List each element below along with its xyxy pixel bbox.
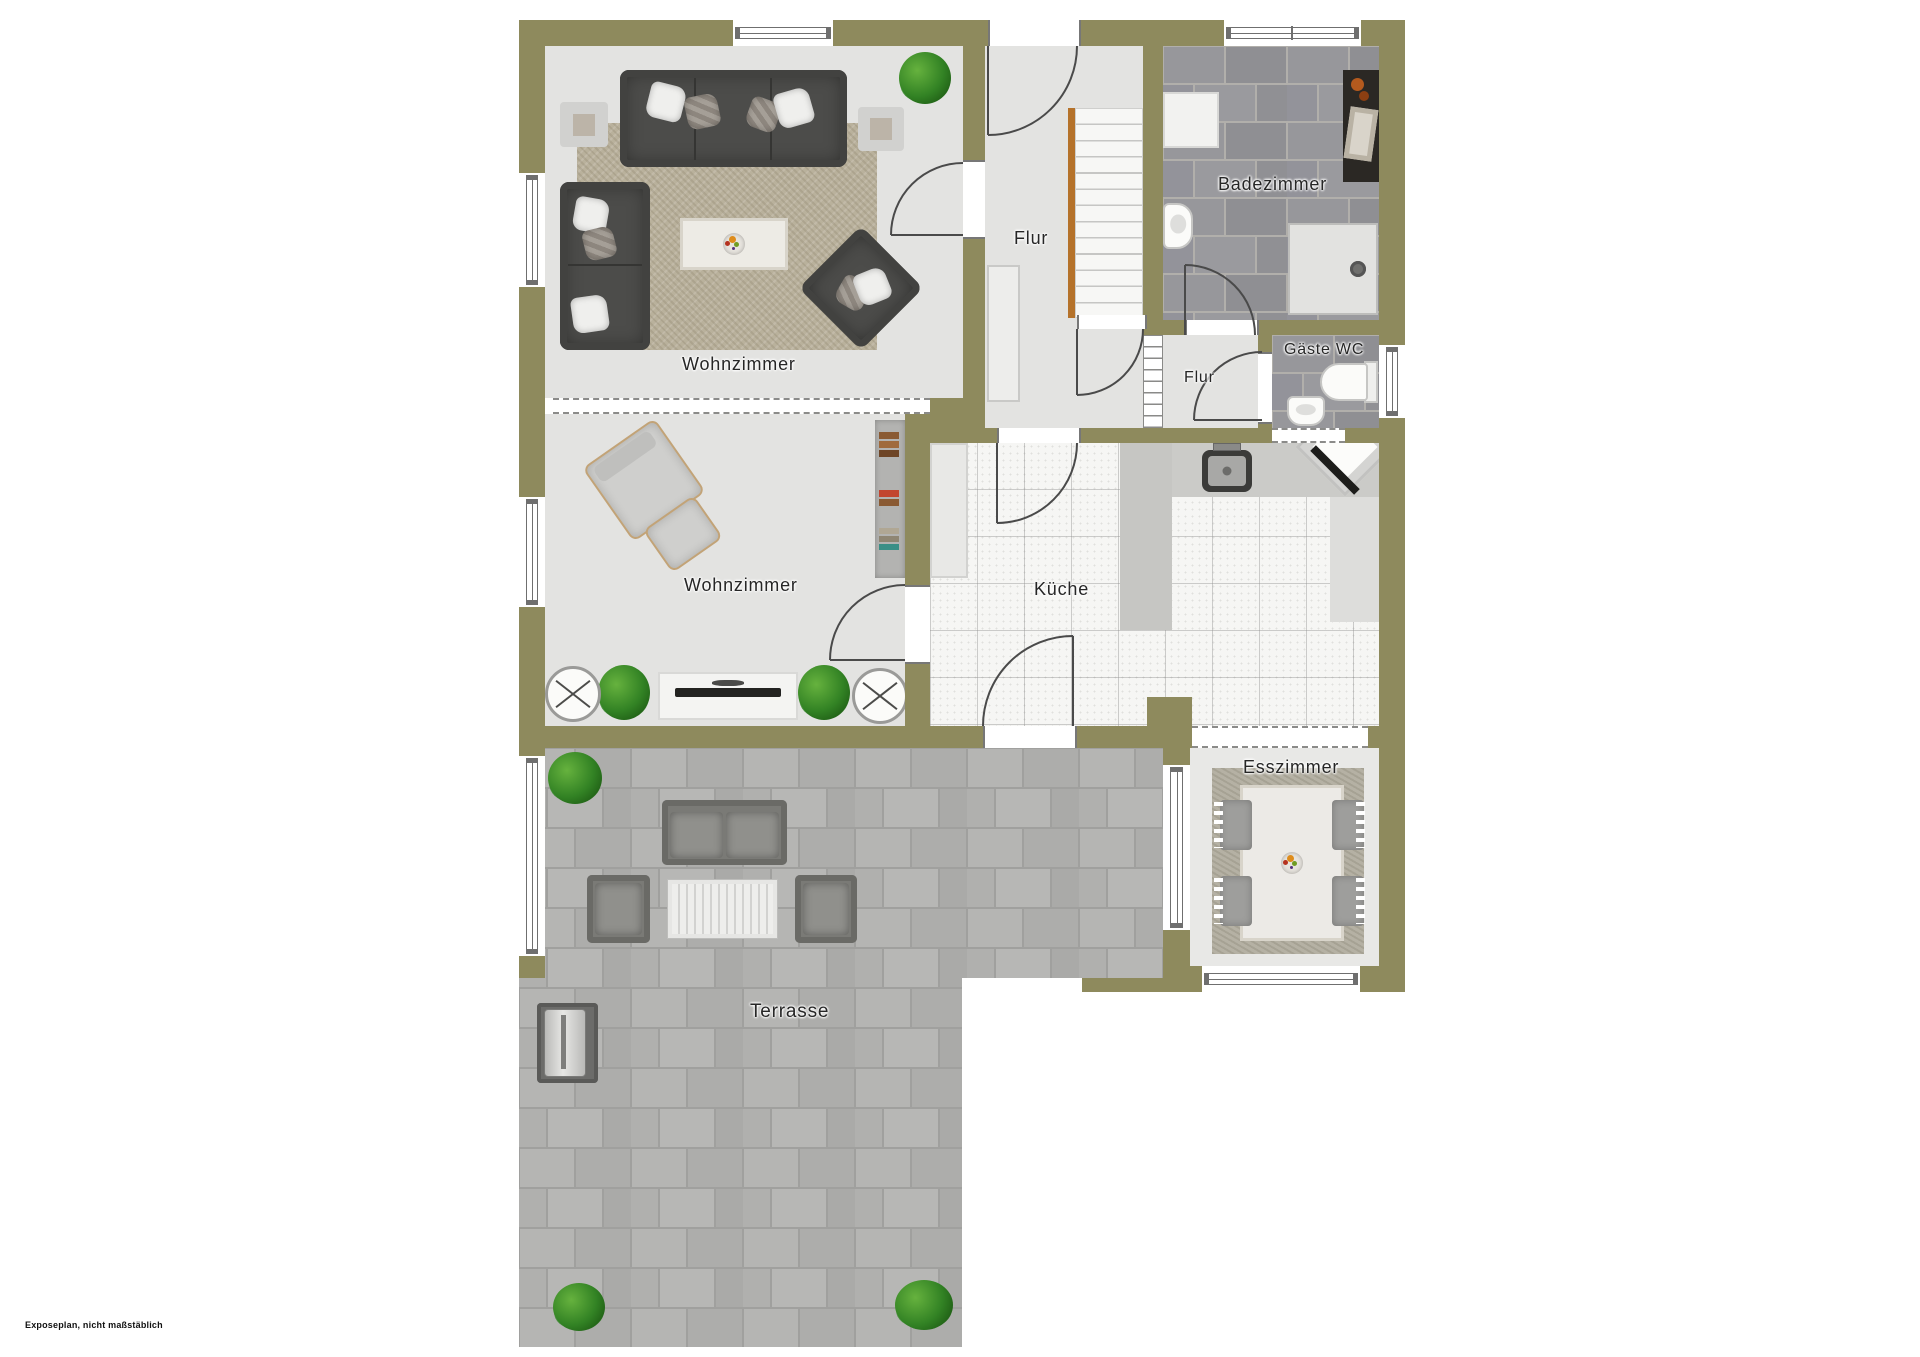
wall [905,414,930,585]
room-label-wohnzimmer-1: Wohnzimmer [682,354,796,375]
hallway-cabinet [987,265,1020,402]
wall-stub [1082,978,1163,992]
wall [1163,748,1190,765]
wall [963,235,985,412]
kitchen-island-counter [1120,443,1172,630]
room-label-kueche: Küche [1034,579,1089,600]
wall [905,660,930,726]
terrasse-paving [519,748,1163,1347]
round-side-table [852,668,908,724]
potted-plant [598,665,650,720]
kitchen-corner-unit [1296,440,1380,524]
room-label-esszimmer: Esszimmer [1243,757,1339,778]
staircase [1075,108,1143,318]
bathroom-shelf-unit [1343,70,1379,182]
entrance-door-opening [988,20,1081,46]
wall [963,46,985,160]
terrace-door-opening [983,726,1077,748]
wall [1379,748,1405,992]
tv [675,688,781,697]
chair-armrest [1356,802,1365,848]
wall [1345,428,1379,443]
tv-stand [712,680,744,686]
outdoor-armchair [795,875,857,943]
window [519,497,545,607]
floor-plan-page: Wohnzimmer Flur Badezimmer Gäste WC Flur… [0,0,1920,1357]
window [519,173,545,287]
bbq-grill [537,1003,598,1083]
open-passage-dashed [1192,726,1368,748]
potted-plant [798,665,850,720]
outdoor-armchair [587,875,650,943]
room-label-flur-1: Flur [1014,228,1048,249]
door-opening [997,428,1081,443]
wall [519,748,545,756]
wall [519,726,983,748]
potted-plant [895,1280,953,1330]
room-label-gaeste-wc: Gäste WC [1284,341,1364,359]
fruit-bowl [723,233,745,255]
wall [1255,320,1379,335]
bathroom-cabinet [1163,92,1219,148]
outdoor-table [668,880,777,938]
door-opening [1258,352,1272,424]
dining-chair [1220,876,1252,926]
wall [1368,726,1405,748]
room-label-flur-2: Flur [1184,369,1215,387]
chair-armrest [1214,802,1223,848]
door-opening [963,160,985,239]
wall [985,428,997,443]
fruit-bowl [1281,852,1303,874]
potted-plant [553,1283,605,1331]
kitchen-left-counter [930,443,968,578]
wall [930,398,985,443]
wall-pillar [1147,697,1192,726]
open-passage-dashed [553,398,930,414]
window [1202,966,1360,992]
wall [1163,966,1202,992]
kitchen-faucet [1213,443,1241,451]
door-opening [1077,315,1147,329]
wall [519,20,545,173]
wall [1379,20,1405,345]
wall [1143,320,1185,335]
room-label-wohnzimmer-2: Wohnzimmer [684,575,798,596]
round-side-table [545,666,601,722]
chair-armrest [1356,878,1365,924]
sofa-pillow [570,294,611,335]
wall [1077,428,1272,443]
potted-plant [548,752,602,804]
chair-armrest [1214,878,1223,924]
window-mullion [1291,26,1293,40]
wall [1143,46,1163,320]
wall [833,20,988,46]
dining-chair [1220,800,1252,850]
bathroom-sink [1163,203,1193,249]
window [733,20,833,46]
wall [519,287,545,497]
wall [1360,966,1405,992]
side-table [858,107,904,151]
room-label-badezimmer: Badezimmer [1218,174,1327,195]
toilet [1320,363,1368,401]
wall [1073,726,1192,748]
bookshelf [875,420,905,578]
stairs-stringer [1068,108,1075,318]
plan-footnote: Exposeplan, nicht maßstäblich [25,1320,163,1330]
hall-passage-element [1143,335,1163,428]
wall [519,956,545,978]
wall [1258,335,1272,352]
wall [1077,20,1224,46]
open-passage-dashed [1272,428,1345,443]
wall [519,20,733,46]
window [1163,765,1190,930]
door-opening [1185,320,1259,335]
outdoor-sofa [662,800,787,865]
side-table [560,102,608,147]
shower [1288,223,1378,315]
potted-plant [899,52,951,104]
kitchen-sink [1202,450,1252,492]
door-opening [905,585,930,664]
window [519,756,545,956]
wall [1379,418,1405,748]
room-label-terrasse: Terrasse [750,1001,829,1023]
window [1379,345,1405,418]
wc-sink [1287,396,1325,426]
